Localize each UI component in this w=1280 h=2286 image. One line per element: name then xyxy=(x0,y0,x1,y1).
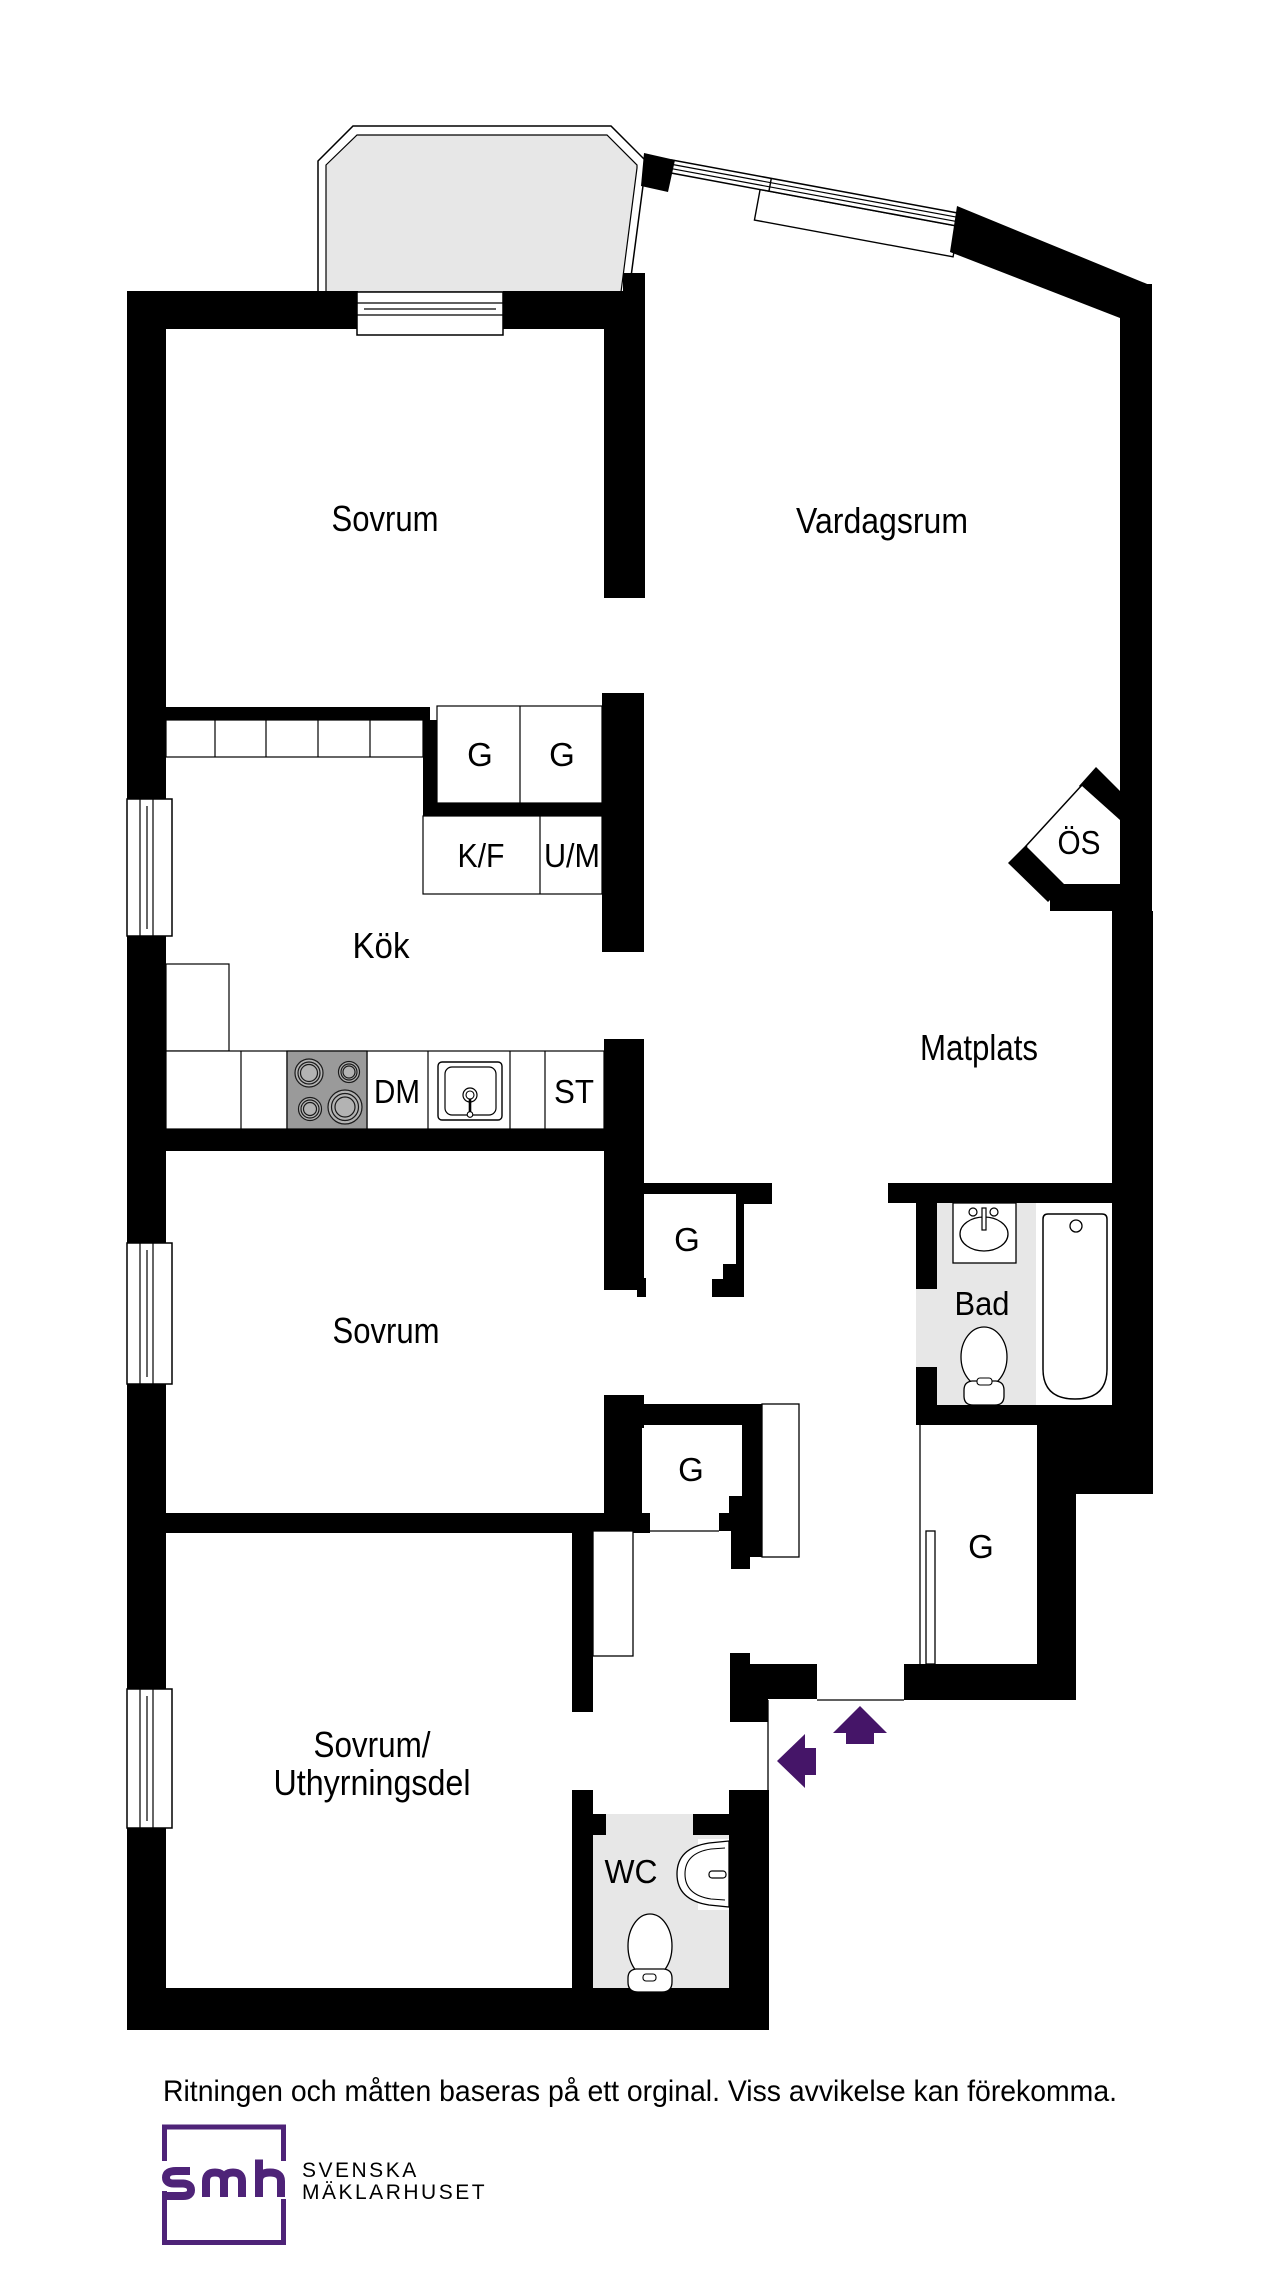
svg-text:Matplats: Matplats xyxy=(920,1027,1038,1068)
svg-text:WC: WC xyxy=(605,1853,658,1890)
svg-text:ST: ST xyxy=(554,1073,594,1110)
svg-text:K/F: K/F xyxy=(458,837,505,874)
svg-text:G: G xyxy=(968,1528,994,1565)
svg-text:Sovrum: Sovrum xyxy=(332,498,439,539)
svg-text:Vardagsrum: Vardagsrum xyxy=(796,500,968,541)
svg-text:MÄKLARHUSET: MÄKLARHUSET xyxy=(302,2181,487,2204)
svg-text:G: G xyxy=(674,1221,700,1258)
svg-text:U/M: U/M xyxy=(544,837,600,874)
svg-text:Kök: Kök xyxy=(353,925,411,966)
svg-text:DM: DM xyxy=(374,1073,420,1110)
svg-text:Ritningen och måtten baseras p: Ritningen och måtten baseras på ett orgi… xyxy=(163,2075,1117,2108)
svg-text:G: G xyxy=(467,736,493,773)
svg-text:Sovrum/: Sovrum/ xyxy=(314,1724,431,1765)
svg-text:ÖS: ÖS xyxy=(1058,824,1101,861)
svg-text:Sovrum: Sovrum xyxy=(333,1310,440,1351)
svg-text:SVENSKA: SVENSKA xyxy=(302,2159,419,2182)
svg-text:G: G xyxy=(549,736,575,773)
svg-text:Uthyrningsdel: Uthyrningsdel xyxy=(274,1762,471,1803)
svg-text:G: G xyxy=(678,1451,704,1488)
svg-text:Bad: Bad xyxy=(955,1285,1010,1322)
